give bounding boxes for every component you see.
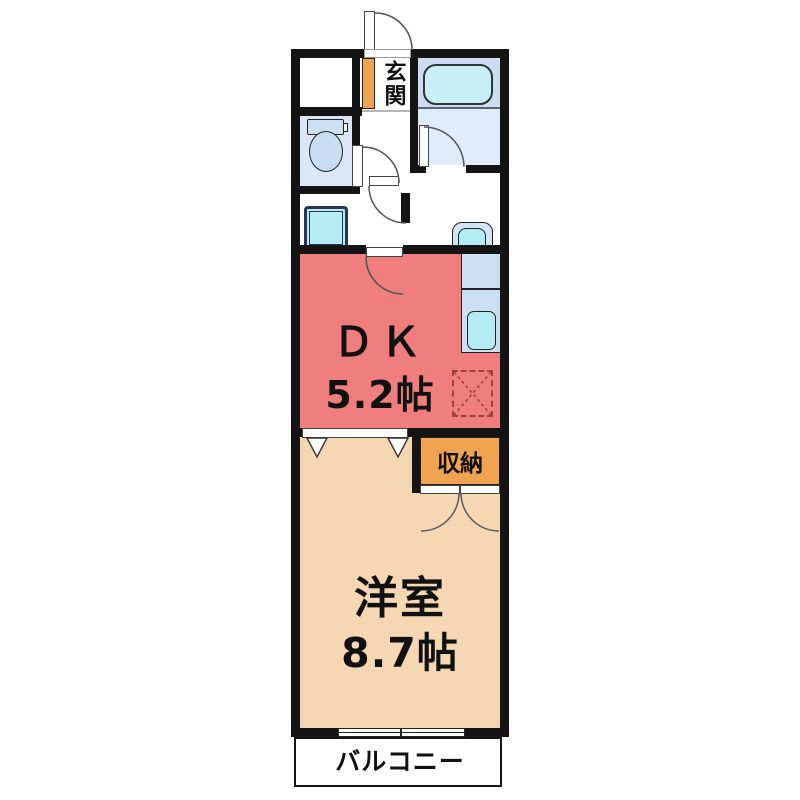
entrance-door-opening [364,49,411,58]
wall-bath-bottom-right [466,165,509,173]
kitchen-sink-fixture [467,311,496,350]
entrance-cabinet [362,58,375,109]
wall-washroom-stub [401,193,410,223]
closet-door-leaf-right [460,485,500,494]
western-room-size: 8.7帖 [300,624,500,674]
closet-door-leaf-left [420,485,460,494]
wall-dk-top-right [403,245,509,254]
wall-dk-bottom-left [291,428,302,437]
bathtub-fixture [423,64,493,105]
wall-entrance-right [410,49,418,165]
toilet-bowl [309,131,343,172]
western-room-name: 洋室 [300,568,500,620]
floorplan: 玄関 ＤＫ 5.2帖 収納 洋室 8.7帖 バルコニー [0,0,800,800]
entrance-label: 玄関 [375,58,410,109]
wall-storage-left [412,437,420,493]
storage-label: 収納 [420,437,500,485]
wall-top-right [411,49,509,58]
wall-room-bottom-left [291,728,338,737]
bathroom-door-leaf [419,125,429,167]
window-symbol [338,728,465,737]
wall-dk-bottom-right [408,428,509,437]
dk-room-name: ＤＫ [290,313,470,363]
wall-below-toilet [291,186,360,194]
dk-door-leaf [366,247,403,257]
balcony-label: バルコニー [303,739,497,781]
wall-toilet-right [352,49,360,145]
entrance-door-leaf [364,11,375,52]
wall-dk-top-left [291,245,366,254]
washroom-door-leaf [369,176,399,186]
bathroom-lower-area [418,108,500,165]
washing-machine-pan [304,206,348,250]
folding-door-band [302,428,408,438]
bathtub-platform-line [418,107,500,109]
dk-room-size: 5.2帖 [290,367,470,415]
entrance-threshold-line [362,110,410,112]
toilet-door-leaf [352,145,363,187]
toilet-flush-handle [343,123,348,132]
wall-room-bottom-right [465,728,509,737]
wall-right [500,49,509,737]
